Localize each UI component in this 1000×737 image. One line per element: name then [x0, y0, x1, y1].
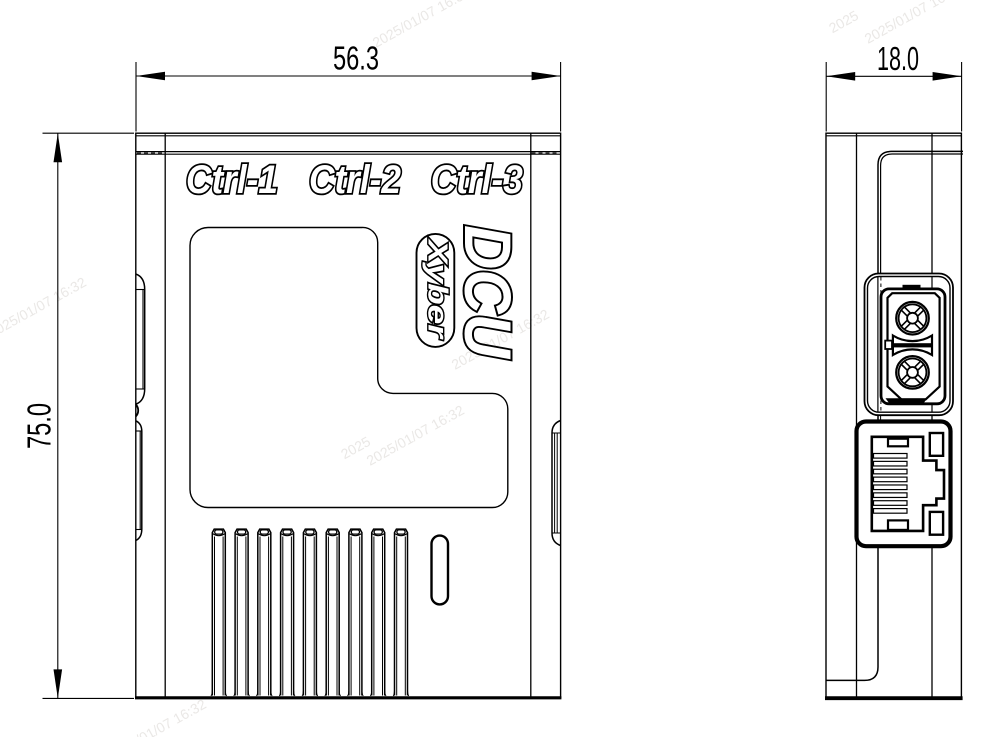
svg-text:Ctrl-1: Ctrl-1: [186, 158, 278, 202]
svg-text:Ctrl-2: Ctrl-2: [309, 158, 401, 202]
svg-text:Xyber: Xyber: [423, 237, 454, 340]
svg-text:18.0: 18.0: [877, 40, 919, 77]
svg-text:56.3: 56.3: [333, 40, 379, 77]
svg-text:DCU: DCU: [451, 225, 525, 360]
svg-text:Ctrl-3: Ctrl-3: [431, 158, 523, 202]
svg-text:75.0: 75.0: [20, 403, 57, 449]
